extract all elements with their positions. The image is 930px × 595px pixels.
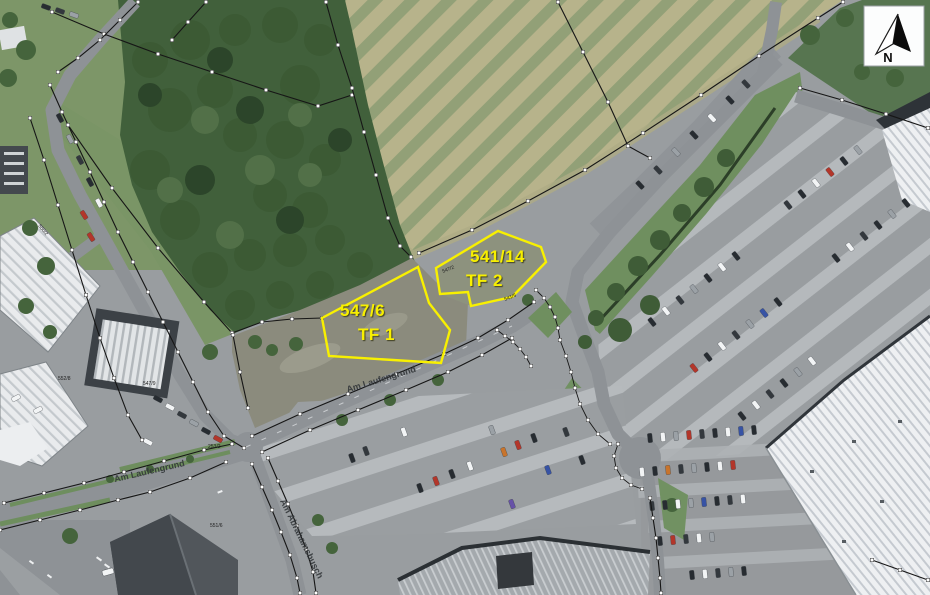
building-left-edge-small [0, 146, 28, 194]
building-center [84, 308, 179, 398]
small-parcel-label: 551/6 [210, 523, 223, 529]
north-arrow: N [864, 6, 924, 66]
aerial-map: 547/6 TF 1 541/14 TF 2 Am Laufengrund Am… [0, 0, 930, 595]
small-parcel-label: 253/2 [208, 444, 221, 450]
small-parcel-label: 552/8 [58, 376, 71, 382]
parcel-541-14-number: 541/14 [470, 247, 525, 266]
small-parcel-label: 547/9 [143, 381, 156, 387]
parking-lot-south [250, 386, 636, 536]
parcel-541-14-tf: TF 2 [466, 271, 503, 290]
aerial-map-screenshot: 547/6 TF 1 541/14 TF 2 Am Laufengrund Am… [0, 0, 930, 595]
north-label: N [883, 50, 892, 65]
parcel-547-6-number: 547/6 [340, 301, 385, 320]
parcel-547-6-tf: TF 1 [358, 325, 395, 344]
